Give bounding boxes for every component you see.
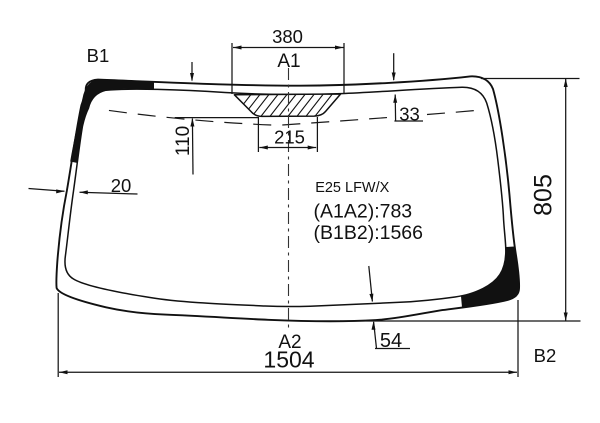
svg-text:B2: B2 [534, 345, 557, 366]
svg-text:110: 110 [173, 126, 194, 156]
svg-text:A1: A1 [277, 51, 300, 72]
svg-text:33: 33 [399, 103, 420, 124]
svg-text:1504: 1504 [263, 347, 314, 373]
svg-text:805: 805 [530, 174, 558, 216]
svg-text:215: 215 [274, 127, 305, 148]
svg-text:(A1A2):783: (A1A2):783 [314, 201, 413, 223]
svg-text:54: 54 [380, 330, 402, 352]
svg-text:E25 LFW/X: E25 LFW/X [315, 180, 389, 196]
svg-text:(B1B2):1566: (B1B2):1566 [314, 222, 424, 244]
svg-text:B1: B1 [87, 45, 110, 66]
svg-text:20: 20 [111, 175, 132, 196]
svg-text:380: 380 [272, 26, 303, 47]
